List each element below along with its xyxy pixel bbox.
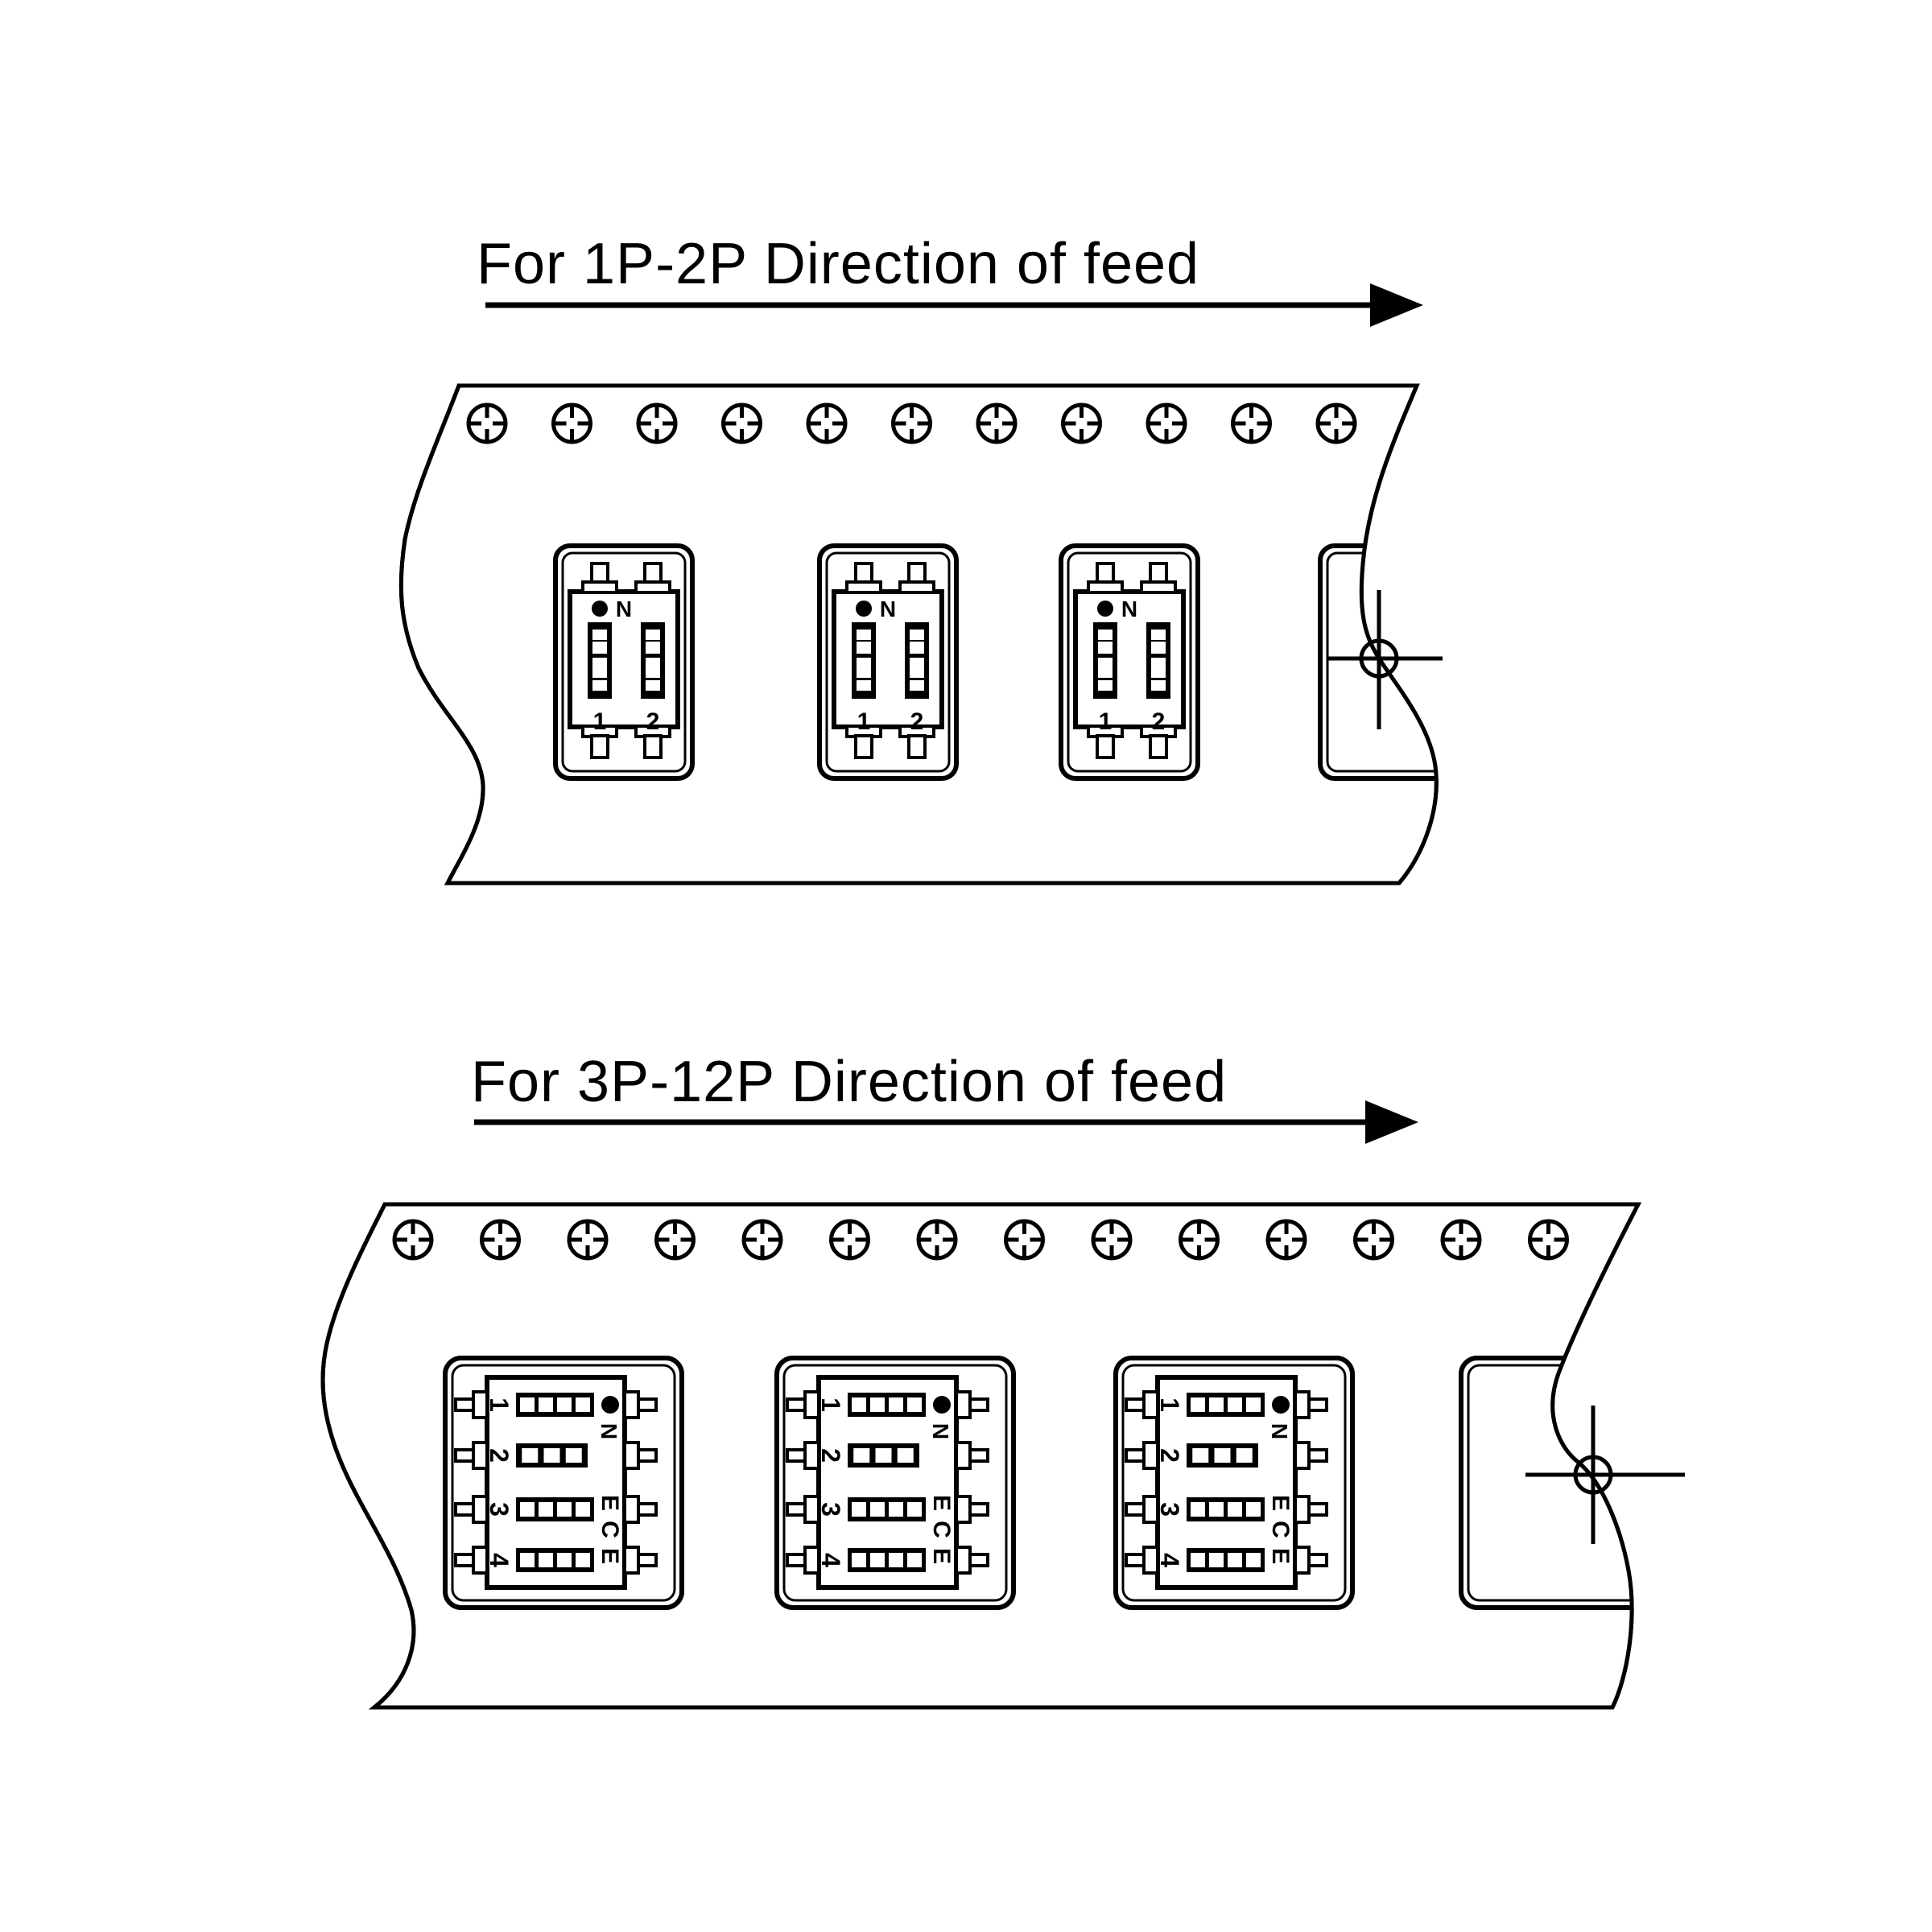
sprocket-hole <box>919 1221 956 1258</box>
on-label: N <box>597 1423 621 1439</box>
sprocket-hole <box>978 405 1015 442</box>
on-label: N <box>616 597 632 621</box>
sprocket-hole <box>394 1221 431 1258</box>
pin <box>625 1392 638 1418</box>
pin <box>636 582 670 592</box>
sprocket-hole <box>1148 405 1185 442</box>
actuator-segment <box>889 1397 903 1412</box>
pin <box>1126 1554 1144 1566</box>
actuator-segment <box>1191 1553 1205 1567</box>
pin <box>856 736 872 758</box>
actuator-segment <box>1098 630 1113 640</box>
actuator-segment <box>857 680 871 691</box>
tape-and-reel-packaging-drawing: 12N12N12N1234NECE1234NECE1234NECE For 1P… <box>0 0 1932 1932</box>
actuator-segment <box>539 1502 553 1517</box>
on-label: N <box>928 1423 953 1439</box>
pin <box>592 736 608 758</box>
actuator-segment <box>1209 1502 1224 1517</box>
pin <box>583 582 617 592</box>
actuator-segment <box>1228 1502 1242 1517</box>
pin <box>1126 1450 1144 1461</box>
on-index-dot <box>601 1396 619 1414</box>
position-label: 4 <box>816 1553 845 1567</box>
pin <box>1295 1392 1309 1418</box>
actuator-segment <box>520 1502 535 1517</box>
actuator-segment <box>910 658 924 678</box>
actuator-segment <box>566 1448 582 1463</box>
sprocket-hole <box>638 405 675 442</box>
actuator-segment <box>1191 1502 1205 1517</box>
position-label: 4 <box>485 1553 514 1567</box>
component-pocket: 1234NECE <box>1116 1358 1352 1608</box>
component-pocket: 12N <box>1061 546 1198 778</box>
pin <box>1295 1443 1309 1468</box>
actuator-segment <box>646 630 660 640</box>
actuator-segment <box>1246 1502 1261 1517</box>
actuator-segment <box>646 658 660 678</box>
pin <box>625 1547 638 1573</box>
brand-letter: C <box>1267 1521 1294 1538</box>
actuator-segment <box>646 642 660 654</box>
pin <box>970 1450 988 1461</box>
position-label: 1 <box>485 1397 514 1412</box>
actuator-segment <box>520 1553 535 1567</box>
pin <box>456 1450 473 1461</box>
actuator-segment <box>910 630 924 640</box>
pin <box>625 1496 638 1522</box>
brand-letter: E <box>597 1495 623 1511</box>
dip-switch-2pos: 12N <box>834 563 942 758</box>
actuator-segment <box>870 1553 885 1567</box>
position-label: 4 <box>1155 1553 1184 1567</box>
dip-switch-2pos: 12N <box>1075 563 1183 758</box>
actuator-segment <box>857 658 871 678</box>
feed-arrowhead <box>1370 283 1423 327</box>
actuator-segment <box>907 1397 922 1412</box>
actuator-segment <box>557 1553 572 1567</box>
on-label: N <box>1121 597 1137 621</box>
actuator-segment <box>898 1448 914 1463</box>
position-label: 2 <box>1152 708 1166 735</box>
pin <box>970 1399 988 1410</box>
brand-letter: E <box>1267 1548 1294 1564</box>
actuator-segment <box>1209 1397 1224 1412</box>
sprocket-hole <box>1233 405 1270 442</box>
actuator-segment <box>576 1397 590 1412</box>
carrier-tape-3p-12p: 1234NECE1234NECE1234NECE <box>323 1204 1698 1707</box>
pin <box>956 1443 970 1468</box>
position-label: 2 <box>910 708 924 735</box>
position-label: 2 <box>646 708 660 735</box>
dip-switch-4pos-rotated: 1234NECE <box>456 1377 656 1587</box>
position-label: 2 <box>1155 1448 1184 1463</box>
pin <box>909 563 925 583</box>
pin <box>638 1399 656 1410</box>
actuator-segment <box>1098 642 1113 654</box>
dip-switch-4pos-rotated: 1234NECE <box>787 1377 988 1587</box>
actuator-segment <box>852 1397 866 1412</box>
actuator-segment <box>889 1502 903 1517</box>
sprocket-hole <box>554 405 591 442</box>
pin <box>956 1496 970 1522</box>
pin <box>1309 1554 1327 1566</box>
actuator-segment <box>910 642 924 654</box>
actuator-segment <box>1098 680 1113 691</box>
pin <box>1097 563 1113 583</box>
brand-letter: E <box>928 1495 955 1511</box>
sprocket-hole <box>469 405 506 442</box>
pin <box>787 1450 805 1461</box>
actuator-segment <box>876 1448 892 1463</box>
pin <box>900 582 934 592</box>
actuator-segment <box>852 1502 866 1517</box>
carrier-tape-1p-2p: 12N12N12N <box>401 386 1457 883</box>
actuator-segment <box>853 1448 869 1463</box>
component-pocket: 12N <box>555 546 692 778</box>
actuator-segment <box>857 642 871 654</box>
brand-letter: E <box>1267 1495 1294 1511</box>
actuator-segment <box>1228 1553 1242 1567</box>
pin <box>1309 1399 1327 1410</box>
actuator-segment <box>907 1502 922 1517</box>
actuator-segment <box>1151 680 1166 691</box>
position-label: 1 <box>1099 708 1113 735</box>
pin <box>1295 1496 1309 1522</box>
on-index-dot <box>592 601 608 617</box>
actuator-segment <box>592 630 607 640</box>
sprocket-hole <box>832 1221 869 1258</box>
actuator-segment <box>1151 630 1166 640</box>
position-label: 2 <box>816 1448 845 1463</box>
actuator-segment <box>1246 1397 1261 1412</box>
pin <box>638 1504 656 1515</box>
pin <box>956 1392 970 1418</box>
brand-letter: C <box>597 1521 623 1538</box>
pin <box>1088 582 1122 592</box>
actuator-segment <box>870 1397 885 1412</box>
actuator-segment <box>1215 1448 1231 1463</box>
brand-letter: E <box>928 1548 955 1564</box>
actuator-segment <box>539 1397 553 1412</box>
pin <box>456 1504 473 1515</box>
on-index-dot <box>1097 601 1113 617</box>
sprocket-hole <box>482 1221 519 1258</box>
pin <box>456 1399 473 1410</box>
actuator-segment <box>592 658 607 678</box>
sprocket-hole <box>569 1221 606 1258</box>
actuator-segment <box>852 1553 866 1567</box>
pin <box>847 582 881 592</box>
sprocket-hole <box>1181 1221 1218 1258</box>
section-title-1p-2p: For 1P-2P Direction of feed <box>477 235 1199 293</box>
pin <box>970 1504 988 1515</box>
pin <box>787 1399 805 1410</box>
on-label: N <box>1267 1423 1292 1439</box>
pin <box>1097 736 1113 758</box>
pin <box>1295 1547 1309 1573</box>
position-label: 1 <box>857 708 871 735</box>
actuator-segment <box>870 1502 885 1517</box>
dip-switch-2pos: 12N <box>570 563 678 758</box>
position-label: 3 <box>485 1502 514 1517</box>
on-index-dot <box>856 601 872 617</box>
actuator-segment <box>592 642 607 654</box>
brand-letter: E <box>597 1548 623 1564</box>
position-label: 1 <box>816 1397 845 1412</box>
pin <box>1309 1450 1327 1461</box>
pin <box>638 1554 656 1566</box>
pin <box>638 1450 656 1461</box>
actuator-segment <box>576 1502 590 1517</box>
actuator-segment <box>1246 1553 1261 1567</box>
actuator-segment <box>539 1553 553 1567</box>
section-title-3p-12p: For 3P-12P Direction of feed <box>471 1053 1227 1111</box>
actuator-segment <box>1228 1397 1242 1412</box>
pin <box>1150 736 1166 758</box>
component-pocket <box>1320 546 1457 778</box>
actuator-segment <box>1151 642 1166 654</box>
sprocket-hole <box>744 1221 781 1258</box>
position-label: 2 <box>485 1448 514 1463</box>
pin <box>956 1547 970 1573</box>
pin <box>856 563 872 583</box>
on-index-dot <box>933 1396 951 1414</box>
component-pocket: 12N <box>819 546 956 778</box>
actuator-segment <box>1098 658 1113 678</box>
sprocket-hole <box>1093 1221 1130 1258</box>
actuator-segment <box>1151 658 1166 678</box>
pin <box>645 736 661 758</box>
sprocket-hole <box>808 405 845 442</box>
sprocket-hole <box>1006 1221 1043 1258</box>
pin <box>1126 1504 1144 1515</box>
actuator-segment <box>544 1448 560 1463</box>
position-label: 3 <box>816 1502 845 1517</box>
component-pocket: 1234NECE <box>445 1358 682 1608</box>
pin <box>970 1554 988 1566</box>
position-label: 1 <box>1155 1397 1184 1412</box>
actuator-segment <box>646 680 660 691</box>
pin <box>787 1504 805 1515</box>
pin <box>787 1554 805 1566</box>
actuator-segment <box>1192 1448 1208 1463</box>
actuator-segment <box>592 680 607 691</box>
dip-switch-4pos-rotated: 1234NECE <box>1126 1377 1327 1587</box>
sprocket-hole <box>894 405 931 442</box>
position-label: 1 <box>593 708 607 735</box>
pin <box>1141 582 1175 592</box>
actuator-segment <box>557 1397 572 1412</box>
actuator-segment <box>520 1397 535 1412</box>
pin <box>1150 563 1166 583</box>
pin <box>909 736 925 758</box>
pocket-outer-edge <box>1320 546 1457 778</box>
pin <box>1126 1399 1144 1410</box>
sprocket-hole <box>724 405 761 442</box>
pin <box>625 1443 638 1468</box>
actuator-segment <box>576 1553 590 1567</box>
pin <box>645 563 661 583</box>
pin <box>1309 1504 1327 1515</box>
actuator-segment <box>907 1553 922 1567</box>
component-pocket: 1234NECE <box>777 1358 1013 1608</box>
actuator-segment <box>889 1553 903 1567</box>
sprocket-hole <box>1063 405 1100 442</box>
sprocket-hole <box>1268 1221 1305 1258</box>
actuator-segment <box>557 1502 572 1517</box>
actuator-segment <box>1209 1553 1224 1567</box>
sprocket-hole <box>1318 405 1355 442</box>
on-label: N <box>880 597 896 621</box>
actuator-segment <box>910 680 924 691</box>
actuator-segment <box>522 1448 538 1463</box>
sprocket-hole <box>1530 1221 1567 1258</box>
feed-arrowhead <box>1365 1100 1418 1144</box>
position-label: 3 <box>1155 1502 1184 1517</box>
pin <box>456 1554 473 1566</box>
pin <box>592 563 608 583</box>
sprocket-hole <box>1443 1221 1480 1258</box>
on-index-dot <box>1272 1396 1290 1414</box>
actuator-segment <box>1236 1448 1253 1463</box>
actuator-segment <box>857 630 871 640</box>
actuator-segment <box>1191 1397 1205 1412</box>
sprocket-hole <box>657 1221 694 1258</box>
sprocket-hole <box>1356 1221 1393 1258</box>
brand-letter: C <box>928 1521 955 1538</box>
